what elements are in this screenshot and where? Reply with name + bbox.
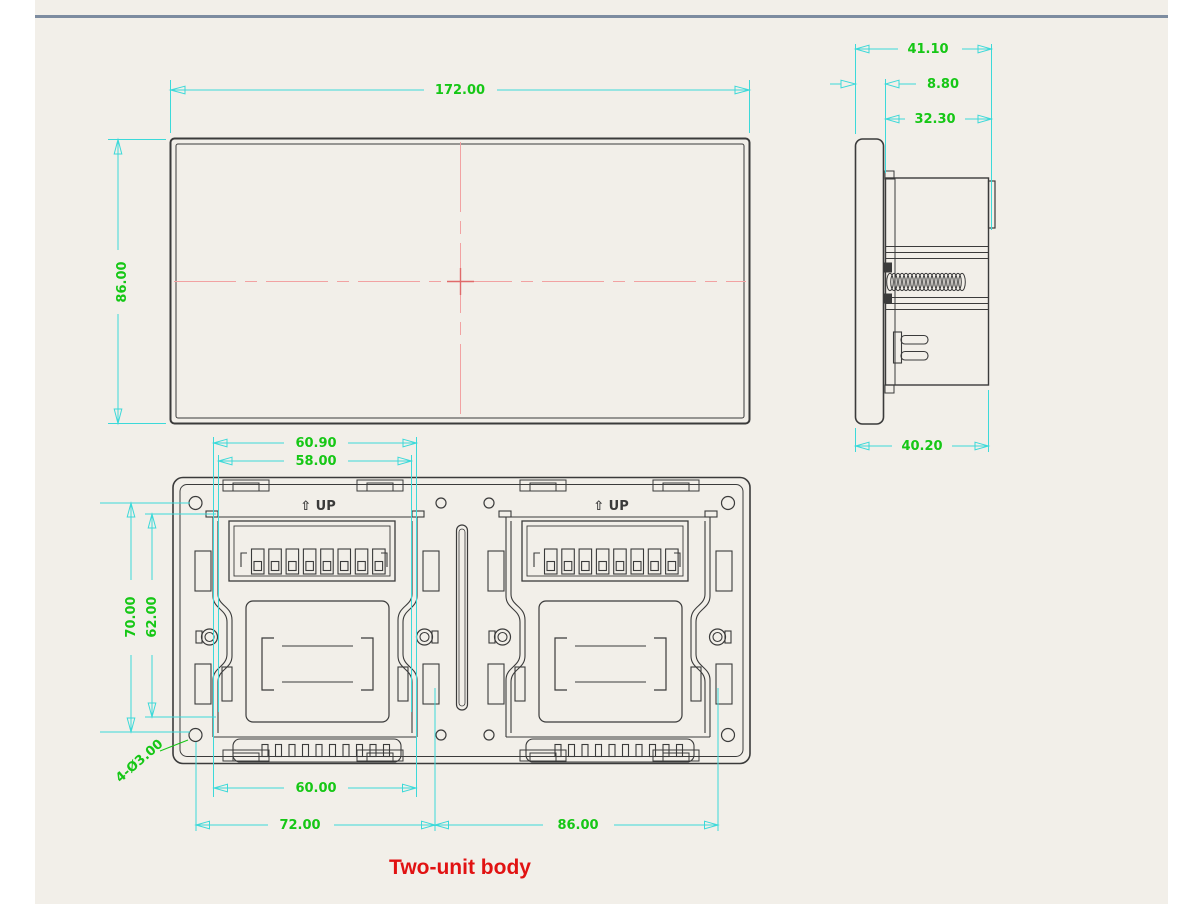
side-notch-lower xyxy=(885,294,892,303)
drawing-page: 172.00 86.00 xyxy=(0,0,1200,904)
socket-unit-right xyxy=(488,511,732,762)
bracket-latch-right xyxy=(412,511,424,517)
dim-bracket-inner-width: 58.00 xyxy=(295,454,336,469)
module-label-lines xyxy=(282,646,353,682)
front-view-dimensions xyxy=(108,80,750,424)
terminal-block xyxy=(229,521,395,581)
arrowheads-flange xyxy=(841,80,899,88)
frame-clip-tabs-top xyxy=(223,480,699,491)
side-view xyxy=(856,139,996,424)
side-notch-upper xyxy=(885,263,892,272)
side-view-dimensions xyxy=(830,44,992,452)
dim-bracket-width: 60.90 xyxy=(295,436,336,451)
dim-module-width: 60.00 xyxy=(295,781,336,796)
up-label-left: ⇧ UP xyxy=(300,499,336,514)
dim-flange-thickness: 8.80 xyxy=(927,77,959,92)
dim-front-height: 86.00 xyxy=(115,261,130,302)
dim-bracket-height: 62.00 xyxy=(145,596,160,637)
module-body xyxy=(246,601,389,722)
dim-right-span: 86.00 xyxy=(557,818,598,833)
side-body-bottom-step xyxy=(885,385,894,393)
dim-left-span: 72.00 xyxy=(279,818,320,833)
hole-callout-text: 4-Ø3.00 xyxy=(113,737,166,786)
view-title: Two-unit body xyxy=(300,856,620,880)
front-view-centerlines xyxy=(174,142,746,422)
side-spring-coil xyxy=(887,273,966,290)
center-divider-slot xyxy=(457,525,468,710)
bracket-right-edge xyxy=(403,517,417,737)
mounting-screw-holes xyxy=(189,497,735,742)
side-prong-clip xyxy=(894,332,929,363)
dim-screw-hole-spacing: 70.00 xyxy=(124,596,139,637)
side-flange xyxy=(856,139,884,424)
vent-ticks xyxy=(262,745,390,757)
dim-mount-depth: 40.20 xyxy=(901,439,942,454)
center-cross-mark xyxy=(447,268,474,295)
up-label-right: ⇧ UP xyxy=(593,499,629,514)
engineering-drawing: 172.00 86.00 xyxy=(0,0,1200,904)
dim-total-depth: 41.10 xyxy=(907,42,948,57)
terminal-windows xyxy=(252,549,386,574)
bracket-left-edge xyxy=(213,517,227,737)
frame-clip-tabs-bottom xyxy=(223,750,699,761)
back-view-dimensions xyxy=(100,437,718,831)
side-rails-lower xyxy=(886,298,988,310)
back-view xyxy=(173,478,750,764)
dim-body-depth: 32.30 xyxy=(914,112,955,127)
side-rails-upper xyxy=(886,247,988,259)
dim-front-width: 172.00 xyxy=(435,83,485,98)
bracket-top-bottom-edges xyxy=(213,517,417,737)
socket-unit xyxy=(195,511,439,762)
